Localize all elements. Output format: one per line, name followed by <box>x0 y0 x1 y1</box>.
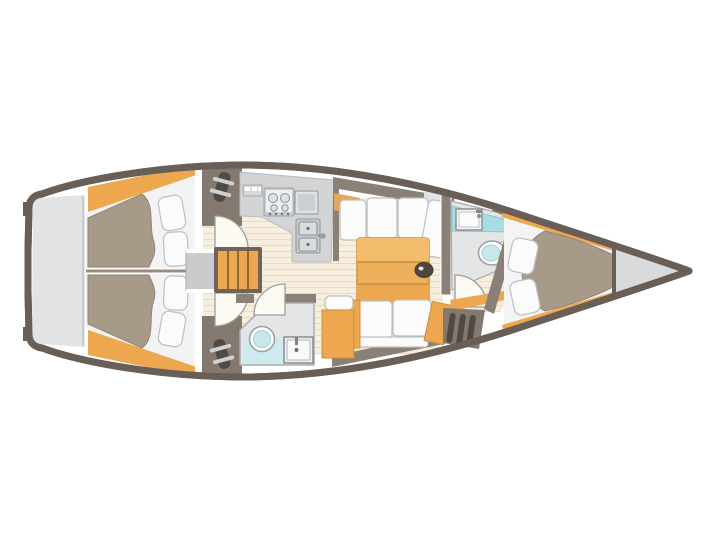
head-wall <box>285 294 316 303</box>
stove: stove-4-burner <box>264 188 294 216</box>
bench-cushion <box>356 301 392 338</box>
anchor-locker: bow-anchor-locker <box>614 246 688 296</box>
pillow <box>157 194 187 232</box>
faucet-icon <box>295 337 298 345</box>
swim-platform: stern-swim-platform <box>32 195 85 347</box>
bench-cushion <box>393 300 431 336</box>
pillow <box>157 310 187 348</box>
pillow <box>163 275 189 310</box>
head-sink <box>456 209 482 230</box>
burner <box>281 194 290 203</box>
faucet-icon <box>476 210 482 213</box>
head-wall <box>236 294 254 303</box>
engine-box <box>186 251 216 291</box>
nav-cabinet: cabinet <box>322 310 354 358</box>
burner <box>282 205 288 211</box>
galley-control-panel <box>243 185 262 196</box>
salon-table: salon-table <box>357 238 433 306</box>
burner <box>271 205 277 211</box>
sink-cover <box>295 191 318 214</box>
companionway: companionway-steps <box>186 247 262 293</box>
bench-cushion-edge <box>358 337 428 347</box>
aft-head: aft-head-bathroom cabinet <box>236 284 354 365</box>
settee-cushion <box>367 198 397 238</box>
floorplan-svg: yacht-hull stern-swim-platform port-aft-… <box>0 0 720 540</box>
table-fiddle-handle <box>415 263 433 278</box>
forward-bulkhead <box>441 193 451 295</box>
head-sink <box>284 337 313 363</box>
settee-cushion <box>340 200 366 240</box>
toilet <box>250 327 275 352</box>
seat-back <box>325 296 353 310</box>
pillow <box>163 231 189 266</box>
burner <box>269 194 278 203</box>
yacht-floorplan-diagram: yacht-hull stern-swim-platform port-aft-… <box>0 0 720 540</box>
